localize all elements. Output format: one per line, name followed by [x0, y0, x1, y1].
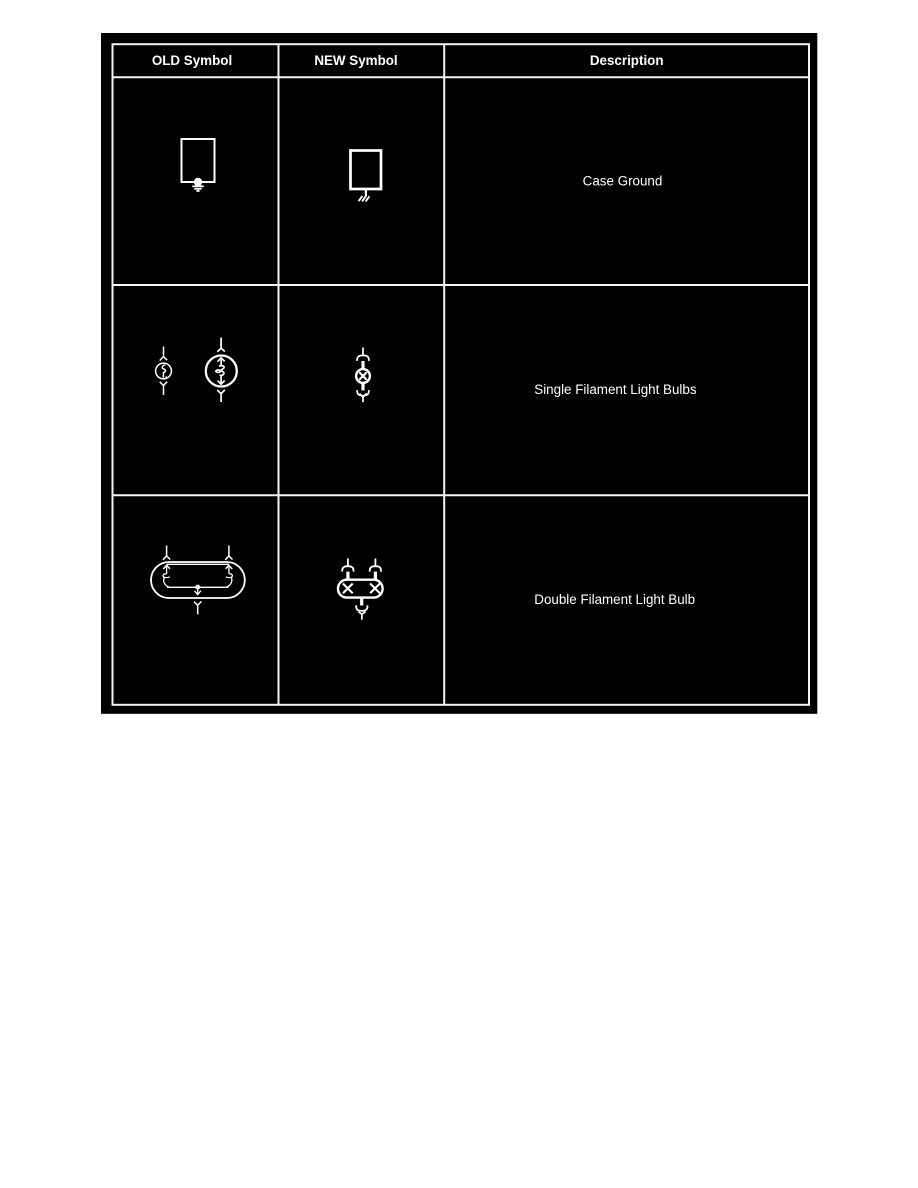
- svg-text:NEW Symbol: NEW Symbol: [314, 53, 397, 68]
- svg-text:Case Ground: Case Ground: [583, 174, 663, 189]
- svg-text:Single Filament Light Bulbs: Single Filament Light Bulbs: [534, 382, 697, 397]
- svg-text:Description: Description: [590, 53, 664, 68]
- svg-text:OLD Symbol: OLD Symbol: [152, 53, 232, 68]
- svg-text:Double Filament Light Bulb: Double Filament Light Bulb: [534, 592, 695, 607]
